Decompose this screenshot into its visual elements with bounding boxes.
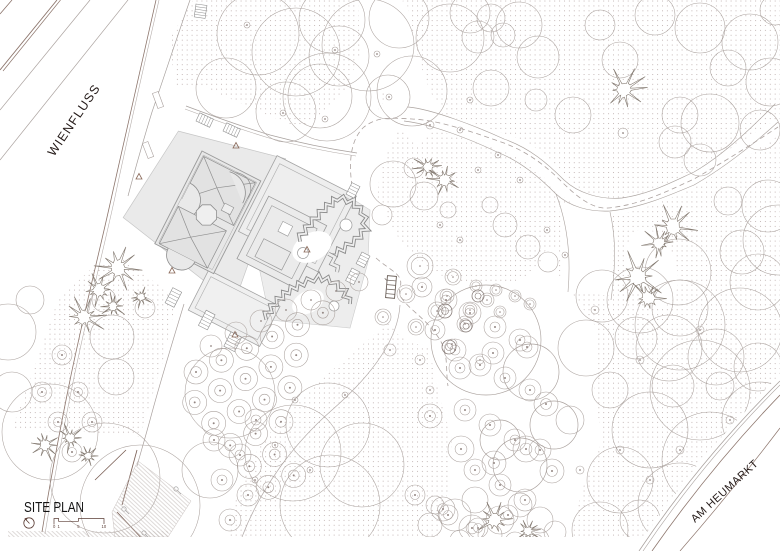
svg-text:SITE PLAN: SITE PLAN	[24, 500, 84, 516]
svg-text:10: 10	[102, 524, 107, 529]
